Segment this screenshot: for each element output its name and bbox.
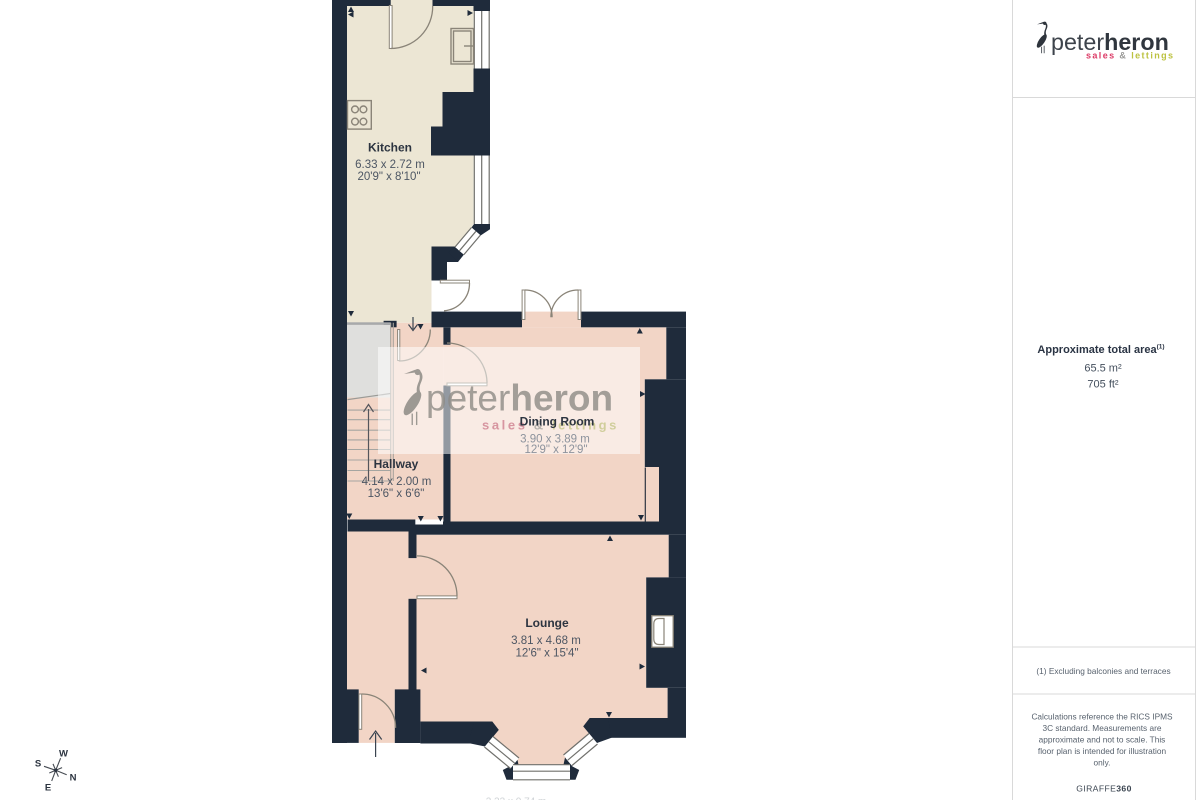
svg-text:705 ft²: 705 ft² — [1087, 379, 1119, 391]
svg-text:3.81 x 4.68 m: 3.81 x 4.68 m — [511, 635, 581, 647]
svg-text:E: E — [45, 783, 51, 794]
svg-text:13'6" x 6'6": 13'6" x 6'6" — [368, 488, 425, 500]
svg-text:W: W — [59, 749, 68, 760]
svg-text:peterheron: peterheron — [426, 378, 613, 419]
svg-text:3C standard. Measurements are: 3C standard. Measurements are — [1043, 723, 1162, 733]
svg-text:Dining Room: Dining Room — [520, 415, 595, 429]
svg-text:approximate and not to scale.: approximate and not to scale. This — [1039, 735, 1166, 745]
svg-text:GIRAFFE360: GIRAFFE360 — [1076, 784, 1132, 794]
svg-text:only.: only. — [1094, 758, 1111, 768]
svg-text:2.23 x 0.74 m: 2.23 x 0.74 m — [486, 797, 547, 800]
svg-text:4.14 x 2.00 m: 4.14 x 2.00 m — [362, 476, 432, 488]
svg-text:floor plan is intended for ill: floor plan is intended for illustration — [1038, 746, 1167, 756]
svg-text:Calculations reference the RIC: Calculations reference the RICS IPMS — [1031, 712, 1173, 722]
svg-text:N: N — [70, 773, 77, 784]
svg-text:Kitchen: Kitchen — [368, 141, 412, 155]
svg-text:6.33 x 2.72 m: 6.33 x 2.72 m — [355, 159, 425, 171]
svg-text:Approximate total area(1): Approximate total area(1) — [1037, 344, 1164, 357]
svg-text:65.5 m²: 65.5 m² — [1084, 363, 1122, 375]
svg-text:(1) Excluding balconies and te: (1) Excluding balconies and terraces — [1036, 666, 1170, 676]
svg-text:Hallway: Hallway — [374, 457, 419, 471]
svg-text:S: S — [35, 759, 41, 770]
svg-text:Lounge: Lounge — [525, 616, 569, 630]
svg-text:12'9" x 12'9": 12'9" x 12'9" — [524, 444, 587, 456]
svg-text:12'6" x 15'4": 12'6" x 15'4" — [515, 648, 578, 660]
svg-text:20'9" x 8'10": 20'9" x 8'10" — [357, 171, 420, 183]
svg-text:sales & lettings: sales & lettings — [1086, 51, 1174, 61]
